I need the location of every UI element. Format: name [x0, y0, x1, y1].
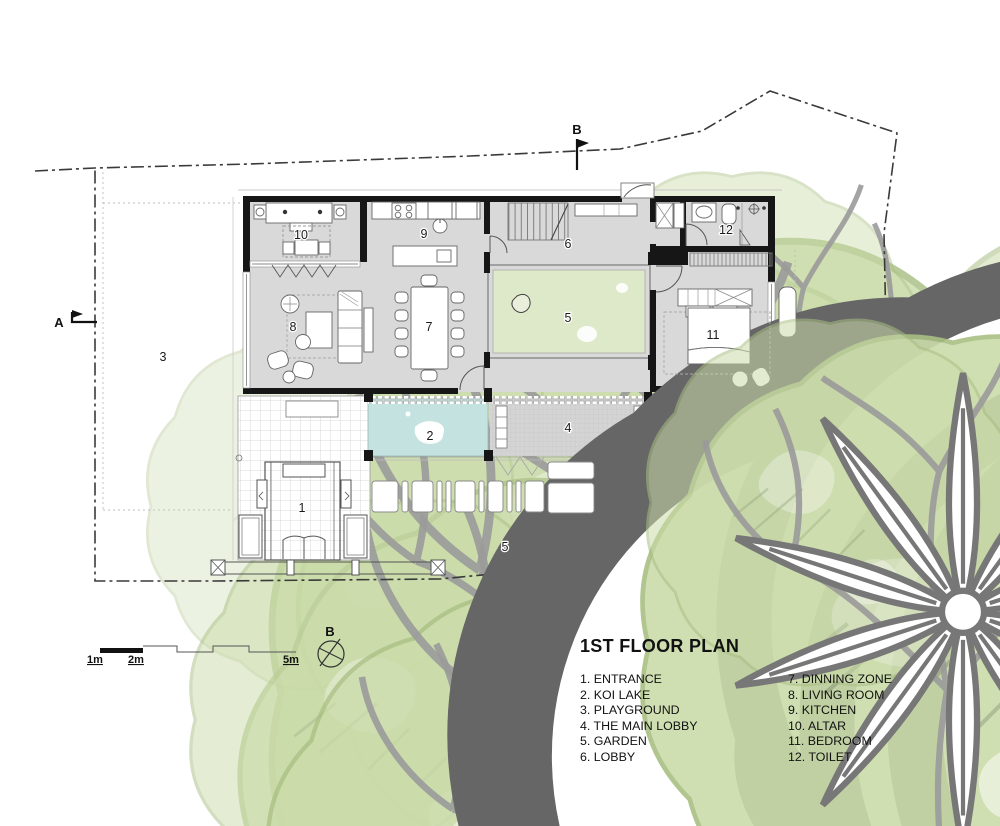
scale-2m: 2m: [128, 654, 144, 666]
legend-item: 9. KITCHEN: [788, 703, 968, 719]
legend-item: 4. THE MAIN LOBBY: [580, 719, 788, 735]
koi-lake: [368, 396, 488, 460]
legend-column-2: 7. DINNING ZONE 8. LIVING ROOM 9. KITCHE…: [788, 672, 968, 766]
legend-item: 12. TOILET: [788, 750, 968, 766]
stairs: [508, 203, 568, 240]
label-koi-lake: 2: [427, 429, 434, 443]
section-flag-icon: [577, 139, 589, 148]
label-toilet: 12: [719, 223, 733, 237]
label-garden-south: 5: [502, 540, 509, 554]
legend-item: 10. ALTAR: [788, 719, 968, 735]
section-marker-b: B: [572, 122, 589, 170]
section-marker-a: A: [54, 310, 97, 330]
legend-column-1: 1. ENTRANCE 2. KOI LAKE 3. PLAYGROUND 4.…: [580, 672, 788, 766]
label-bedroom: 11: [707, 328, 720, 342]
room-legend: 1. ENTRANCE 2. KOI LAKE 3. PLAYGROUND 4.…: [580, 672, 968, 766]
label-garden-court: 5: [565, 311, 572, 325]
wardrobe: [690, 253, 772, 266]
label-entrance: 1: [299, 501, 306, 515]
scale-5m: 5m: [283, 654, 299, 666]
compass-north-label: B: [325, 624, 334, 639]
hall-closet: [656, 203, 684, 228]
label-playground: 3: [160, 350, 167, 364]
svg-text:A: A: [54, 315, 64, 330]
label-main-lobby: 4: [565, 421, 572, 435]
bench: [496, 406, 507, 448]
label-dinning: 7: [426, 320, 433, 334]
label-kitchen: 9: [421, 227, 428, 241]
legend-item: 11. BEDROOM: [788, 734, 968, 750]
label-lobby: 6: [565, 237, 572, 251]
scale-1m: 1m: [87, 654, 103, 666]
floor-plan-page: 1 2 3 4 5 5 6 7 8 9 10 11 12 A B B 1m 2m…: [0, 0, 1000, 826]
legend-item: 1. ENTRANCE: [580, 672, 788, 688]
gate-nameboard: [283, 464, 325, 477]
label-altar: 10: [294, 228, 308, 242]
legend-item: 2. KOI LAKE: [580, 688, 788, 704]
doormat: [286, 401, 338, 417]
page-title: 1ST FLOOR PLAN: [580, 636, 980, 657]
legend-item: 8. LIVING ROOM: [788, 688, 968, 704]
section-flag-icon: [72, 310, 83, 318]
label-living: 8: [290, 320, 297, 334]
door-main-entry: [621, 183, 654, 198]
legend-item: 7. DINNING ZONE: [788, 672, 968, 688]
pool-edge-tiles: [368, 396, 488, 404]
legend-item: 5. GARDEN: [580, 734, 788, 750]
legend-item: 6. LOBBY: [580, 750, 788, 766]
title-block: 1ST FLOOR PLAN: [580, 636, 980, 657]
window-left: [243, 272, 250, 388]
legend-item: 3. PLAYGROUND: [580, 703, 788, 719]
svg-text:B: B: [572, 122, 581, 137]
